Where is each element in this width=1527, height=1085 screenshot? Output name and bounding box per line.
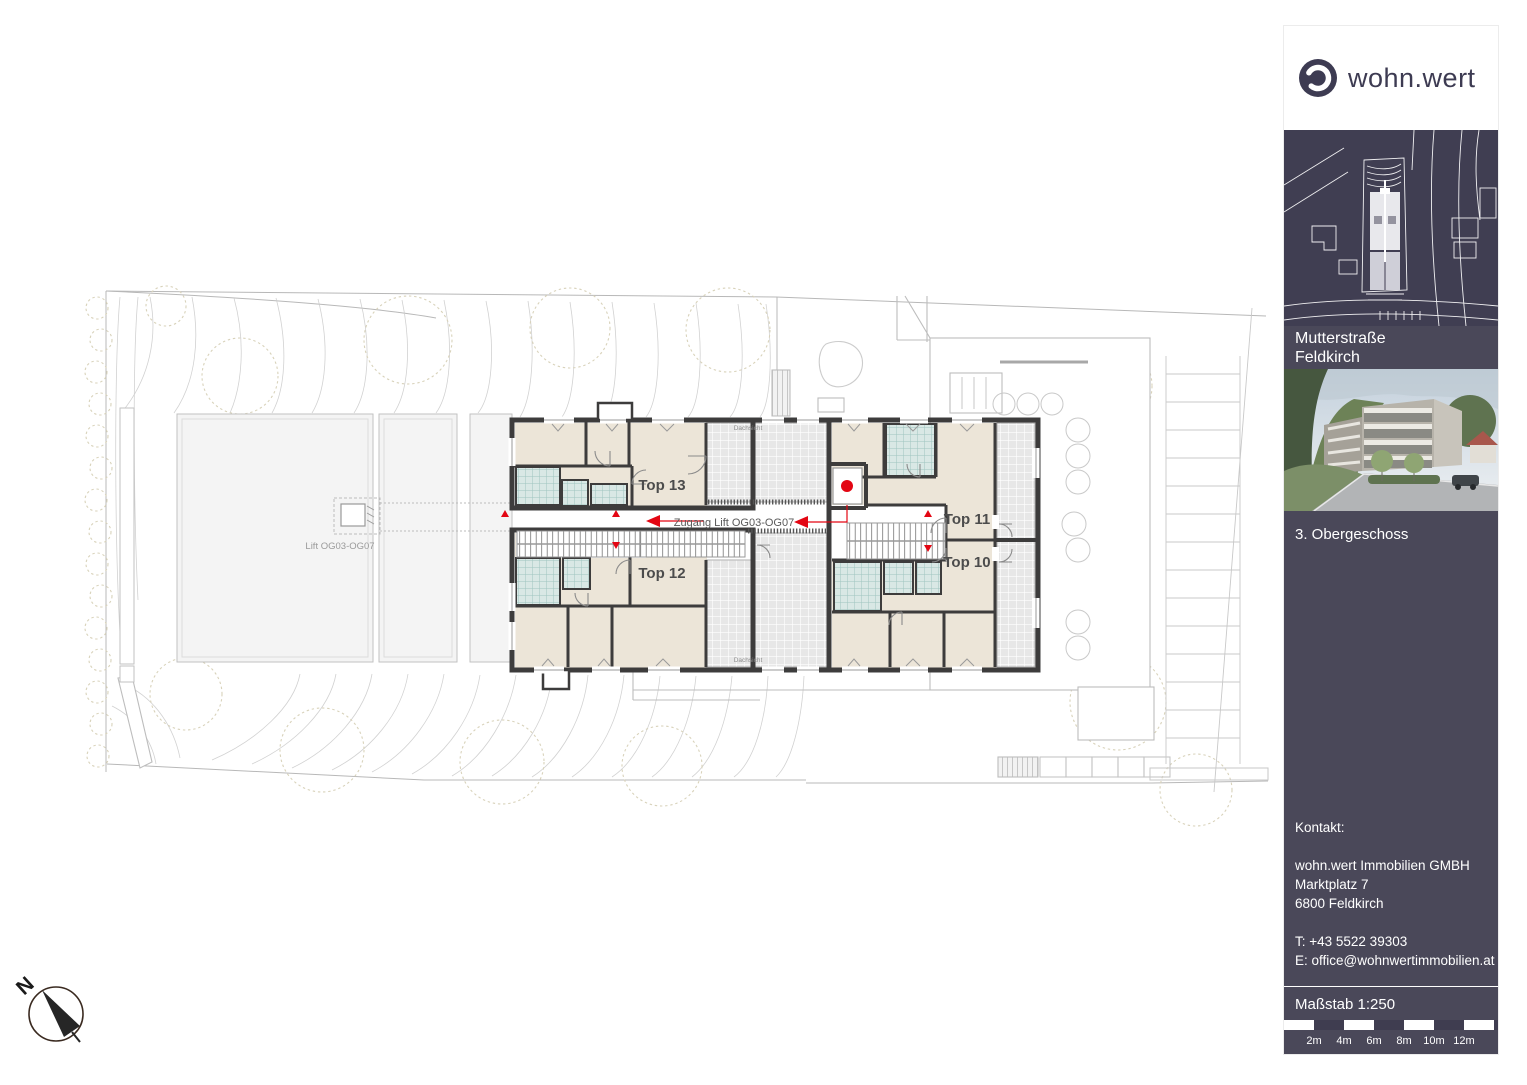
scale-tick: 10m xyxy=(1423,1035,1444,1047)
contact-company: wohn.wert Immobilien GMBH xyxy=(1295,856,1498,875)
scale-tick: 6m xyxy=(1366,1035,1381,1047)
corridor-arrow-left-icon xyxy=(646,515,660,527)
terrace-label-top: Dachsicht xyxy=(734,425,763,432)
logo-text: wohn.wert xyxy=(1348,63,1476,94)
project-title-line1: Mutterstraße xyxy=(1295,329,1498,348)
contact-block: Kontakt: wohn.wert Immobilien GMBH Markt… xyxy=(1284,818,1498,970)
scale-tick: 12m xyxy=(1453,1035,1474,1047)
scale-tick: 4m xyxy=(1336,1035,1351,1047)
contact-phone: T: +43 5522 39303 xyxy=(1295,932,1498,951)
north-arrow-icon: N xyxy=(12,972,83,1042)
unit-label-top13: Top 13 xyxy=(638,477,685,494)
scale-tick: 2m xyxy=(1306,1035,1321,1047)
scale-band xyxy=(1284,1020,1498,1030)
floor-plan: Lift OG03-OG07 xyxy=(0,0,1283,1080)
corridor-arrow-right-icon xyxy=(794,516,808,528)
site-map xyxy=(1284,130,1498,326)
scale-bar: 2m 4m 6m 8m 10m 12m xyxy=(1284,1020,1498,1054)
project-title-line2: Feldkirch xyxy=(1295,348,1498,367)
contact-email: E: office@wohnwertimmobilien.at xyxy=(1295,951,1498,970)
lift-dot-icon xyxy=(841,480,853,492)
contact-city: 6800 Feldkirch xyxy=(1295,894,1498,913)
project-photo xyxy=(1284,369,1498,511)
unit-label-top11: Top 11 xyxy=(944,511,990,528)
lift-shaft xyxy=(833,468,862,504)
project-title: Mutterstraße Feldkirch xyxy=(1284,326,1498,369)
floor-label: 3. Obergeschoss xyxy=(1284,511,1498,543)
sidebar: wohn.wert xyxy=(1283,25,1499,1055)
unit-label-top10: Top 10 xyxy=(943,554,990,571)
scale-label: Maßstab 1:250 xyxy=(1284,987,1498,1020)
logo-icon xyxy=(1298,58,1338,98)
logo: wohn.wert xyxy=(1284,26,1498,130)
sidebar-body: 3. Obergeschoss Kontakt: wohn.wert Immob… xyxy=(1284,511,1498,1054)
contact-street: Marktplatz 7 xyxy=(1295,875,1498,894)
lift-label: Lift OG03-OG07 xyxy=(305,541,374,552)
terrace-label-bottom: Dachsicht xyxy=(734,657,763,664)
corridor-label: Zugang Lift OG03-OG07 xyxy=(674,517,794,529)
site-plan-drawing: Lift OG03-OG07 xyxy=(0,0,1283,1080)
contact-heading: Kontakt: xyxy=(1295,818,1498,837)
scale-tick: 8m xyxy=(1396,1035,1411,1047)
compass-n-label: N xyxy=(12,972,39,999)
parking-strip xyxy=(1166,308,1252,792)
unit-label-top12: Top 12 xyxy=(638,565,685,582)
